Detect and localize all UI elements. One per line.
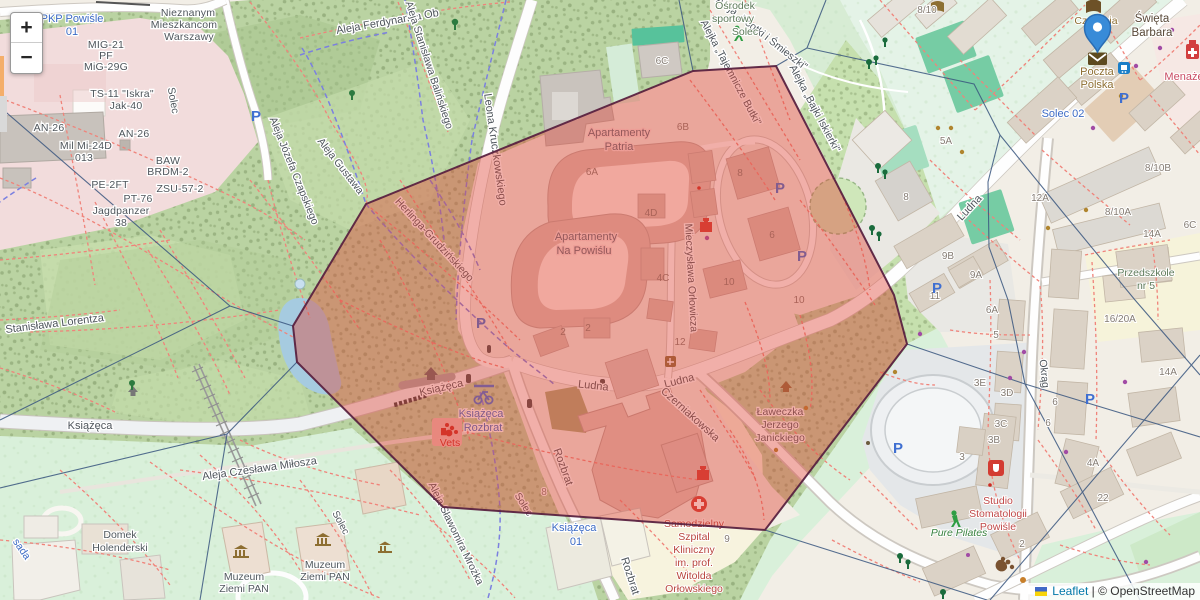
svg-text:Szpital: Szpital (678, 531, 710, 543)
svg-text:Ziemi PAN: Ziemi PAN (300, 571, 349, 583)
svg-text:9B: 9B (942, 251, 955, 262)
svg-text:Holenderski: Holenderski (92, 542, 147, 554)
svg-text:12A: 12A (1031, 193, 1049, 204)
svg-text:8/10A: 8/10A (1105, 207, 1131, 218)
svg-text:Nieznanym: Nieznanym (161, 7, 215, 19)
svg-text:Studio: Studio (983, 495, 1013, 507)
svg-text:22: 22 (1097, 493, 1109, 504)
svg-text:8: 8 (903, 192, 909, 203)
svg-text:ZSU-57-2: ZSU-57-2 (156, 183, 203, 195)
svg-text:Polska: Polska (1080, 79, 1114, 91)
svg-text:01: 01 (570, 536, 582, 548)
svg-text:6C: 6C (1184, 220, 1197, 231)
svg-text:3D: 3D (1001, 388, 1014, 399)
svg-text:14A: 14A (1159, 367, 1177, 378)
svg-text:3E: 3E (974, 378, 987, 389)
svg-text:P: P (1085, 391, 1095, 408)
svg-text:Mil Mi-24D: Mil Mi-24D (60, 140, 112, 152)
svg-text:Przedszkole: Przedszkole (1117, 267, 1174, 279)
svg-text:Poczta: Poczta (1080, 66, 1115, 78)
svg-text:Pure Pilates: Pure Pilates (931, 527, 988, 539)
svg-text:P: P (932, 280, 942, 297)
svg-text:Stomatologii: Stomatologii (969, 508, 1027, 520)
svg-text:PT-76: PT-76 (123, 193, 152, 205)
svg-text:4A: 4A (1087, 458, 1100, 469)
svg-text:PKP Powiśle: PKP Powiśle (41, 13, 104, 25)
svg-text:3B: 3B (988, 435, 1001, 446)
svg-text:Menaże: Menaże (1164, 71, 1200, 83)
svg-text:16/20A: 16/20A (1104, 314, 1136, 325)
svg-text:TS-11 "Iskra": TS-11 "Iskra" (90, 88, 154, 100)
svg-text:Jagdpanzer: Jagdpanzer (93, 205, 150, 217)
svg-text:Święta: Święta (1135, 12, 1170, 25)
svg-text:8/10B: 8/10B (1145, 163, 1171, 174)
svg-text:Orłowskiego: Orłowskiego (665, 583, 723, 595)
svg-text:Solec: Solec (732, 26, 758, 38)
svg-text:3: 3 (959, 452, 965, 463)
svg-text:P: P (893, 440, 903, 457)
svg-text:Witolda: Witolda (676, 570, 711, 582)
svg-text:nr 5: nr 5 (1137, 280, 1155, 292)
svg-text:sportowy: sportowy (712, 13, 755, 25)
svg-text:Domek: Domek (103, 529, 137, 541)
svg-text:Muzeum: Muzeum (305, 559, 346, 571)
svg-text:Muzeum: Muzeum (224, 571, 265, 583)
svg-text:AN-26: AN-26 (119, 128, 150, 140)
svg-text:Mieszkancom: Mieszkancom (151, 19, 217, 31)
svg-text:Jak-40: Jak-40 (110, 100, 143, 112)
svg-text:9A: 9A (970, 270, 983, 281)
svg-text:14A: 14A (1143, 229, 1161, 240)
svg-text:3C: 3C (995, 419, 1008, 430)
svg-text:9: 9 (724, 534, 730, 545)
svg-text:Barbara: Barbara (1132, 27, 1174, 39)
svg-text:8/10: 8/10 (917, 5, 937, 16)
svg-text:P: P (1119, 90, 1129, 107)
svg-text:2: 2 (1019, 539, 1025, 550)
svg-text:6: 6 (1052, 397, 1058, 408)
svg-text:Kliniczny: Kliniczny (673, 544, 715, 556)
svg-text:BRDM-2: BRDM-2 (147, 166, 188, 178)
svg-text:38: 38 (115, 217, 127, 229)
svg-text:Ziemi PAN: Ziemi PAN (219, 583, 268, 595)
svg-text:Warszawy: Warszawy (164, 31, 214, 43)
svg-text:013: 013 (75, 152, 93, 164)
svg-text:01: 01 (66, 26, 78, 38)
svg-text:P: P (251, 108, 261, 125)
svg-text:Solec 02: Solec 02 (1042, 108, 1085, 120)
svg-text:Ośrodek: Ośrodek (715, 0, 755, 12)
svg-text:5: 5 (993, 330, 999, 341)
svg-text:6C: 6C (656, 56, 669, 67)
svg-text:6: 6 (1045, 418, 1051, 429)
svg-text:Książęca: Książęca (68, 420, 114, 432)
svg-text:im. prof.: im. prof. (675, 557, 713, 569)
svg-text:PE-2FT: PE-2FT (91, 179, 129, 191)
svg-text:5A: 5A (940, 136, 953, 147)
svg-text:Książęca: Książęca (552, 522, 598, 534)
svg-text:6A: 6A (986, 305, 999, 316)
svg-text:AN-26: AN-26 (34, 122, 65, 134)
svg-text:MiG-29G: MiG-29G (84, 61, 128, 73)
